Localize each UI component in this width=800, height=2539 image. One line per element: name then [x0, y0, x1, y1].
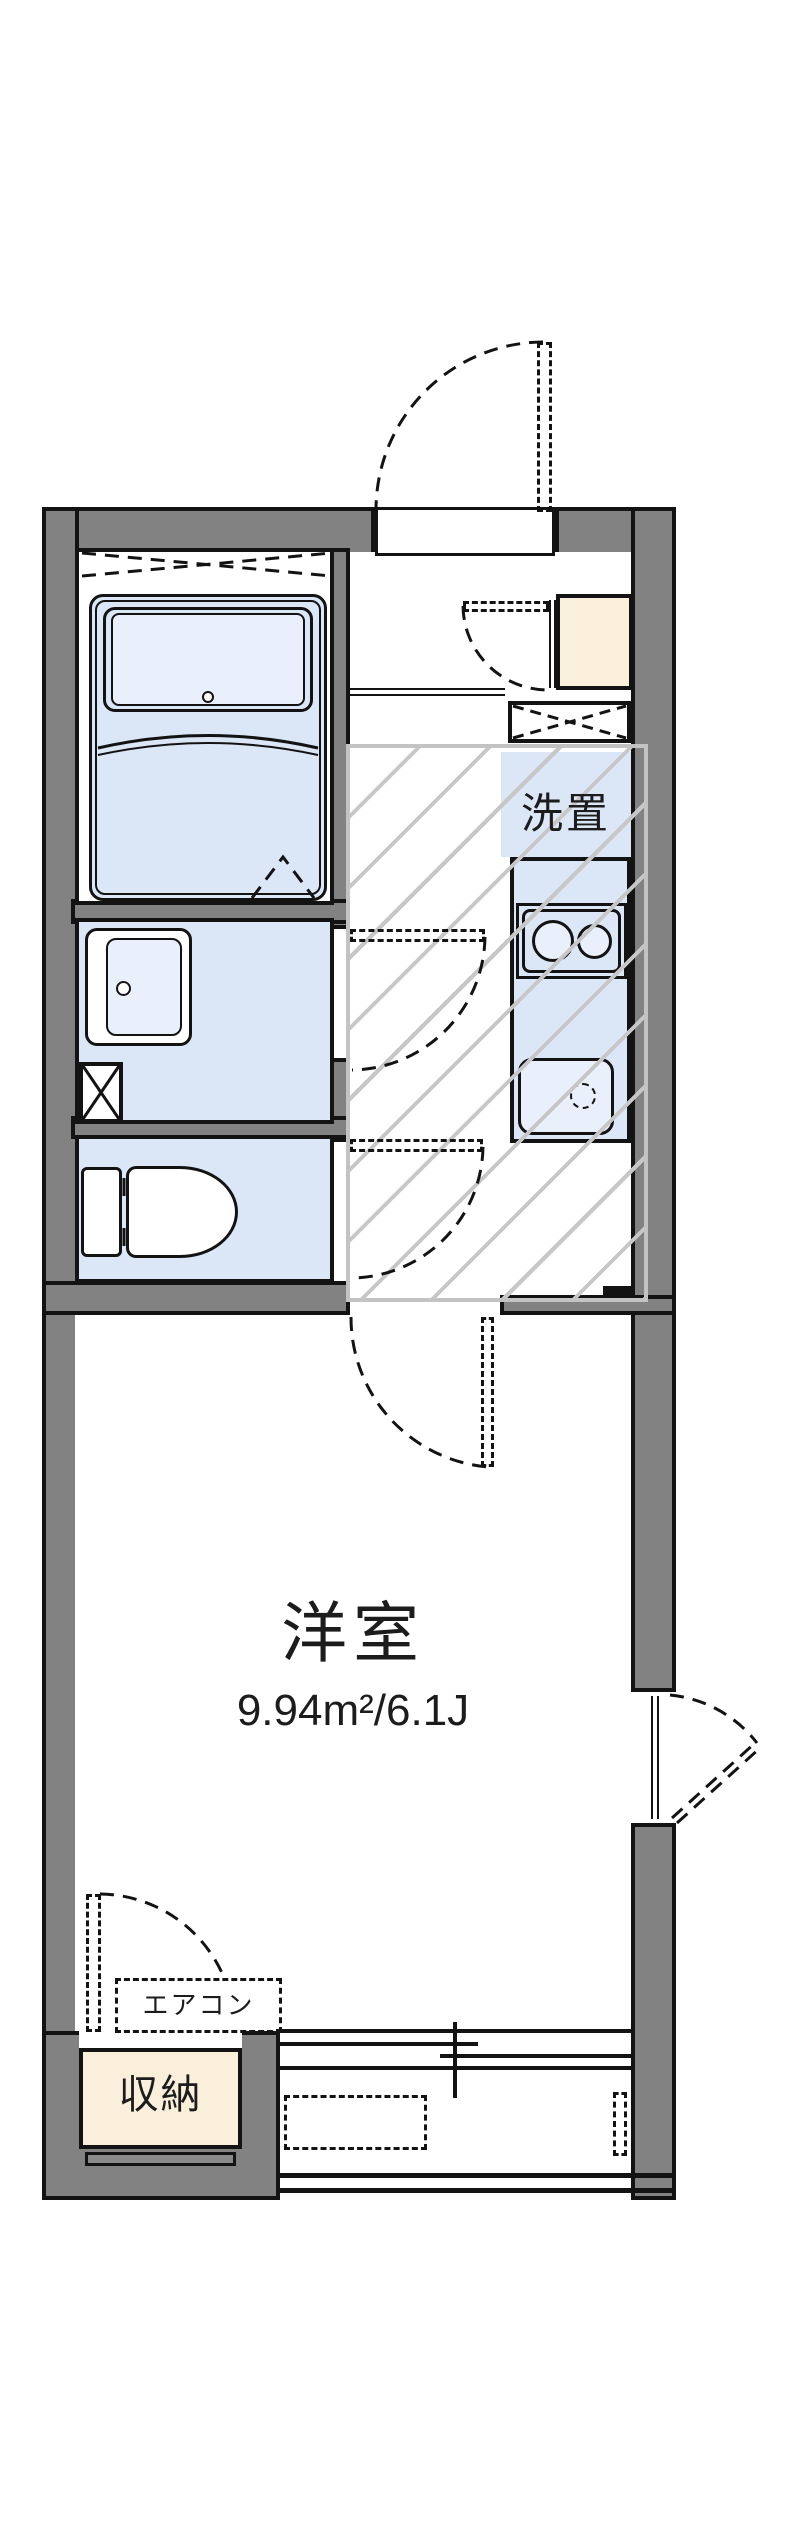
toilet-door-leaf: [350, 1139, 483, 1152]
right-door-arc: [670, 1695, 757, 1743]
window-pane-left: [280, 2042, 478, 2046]
window-center-tick: [453, 2022, 457, 2098]
main-room-label: 洋室: [75, 1596, 631, 1672]
entrance-door-arc: [376, 342, 543, 510]
balcony-rail-line: [276, 2173, 672, 2178]
left-wall: [42, 507, 79, 2200]
genkan-step-line: [348, 694, 505, 696]
right-door-opening: [631, 1692, 676, 1823]
entrance-doorway: [375, 507, 555, 556]
shoe-cabinet-jamb: [554, 600, 556, 688]
window-pane-right: [440, 2054, 631, 2058]
closet-door-leaf: [86, 1894, 101, 2032]
entrance-door-leaf: [537, 342, 552, 512]
toilet-tank: [81, 1167, 122, 1257]
main-room-area: [75, 1315, 631, 2031]
right-door-leaf-line: [657, 1696, 659, 1819]
right-door-open-leaf: [677, 1748, 760, 1823]
room-door-leaf: [481, 1317, 494, 1467]
overhead-cabinet-box: [508, 701, 631, 743]
faucet: [116, 981, 131, 996]
right-door-leaf-line: [651, 1696, 653, 1819]
right-wall-lower: [631, 1823, 676, 2200]
closet-sill: [85, 2152, 236, 2166]
pipe-space-box: [79, 1062, 123, 1123]
main-room-area-label: 9.94m²/6.1J: [75, 1686, 631, 1737]
laundry-label: 洗置: [501, 790, 631, 838]
shoe-door-leaf: [463, 601, 549, 612]
outdoor-small-marker: [613, 2092, 627, 2156]
shoe-cabinet: [556, 594, 633, 690]
toilet-bowl: [126, 1166, 238, 1258]
washroom-door-leaf: [350, 929, 485, 942]
floorplan-canvas: 洗置 洋室 9.94m²/6.1J エアコン 収納: [0, 0, 800, 2539]
divider-wall-left: [42, 1281, 350, 1315]
balcony-rail-line: [276, 2188, 676, 2193]
bathtub-drain: [202, 691, 214, 703]
aircon-label: エアコン: [115, 1991, 282, 2021]
right-door-open-leaf: [672, 1743, 755, 1818]
outdoor-unit-marker: [284, 2095, 427, 2150]
storage-label: 収納: [79, 2072, 242, 2118]
genkan-step-line: [348, 688, 505, 690]
shoe-cabinet-jamb: [549, 600, 551, 688]
